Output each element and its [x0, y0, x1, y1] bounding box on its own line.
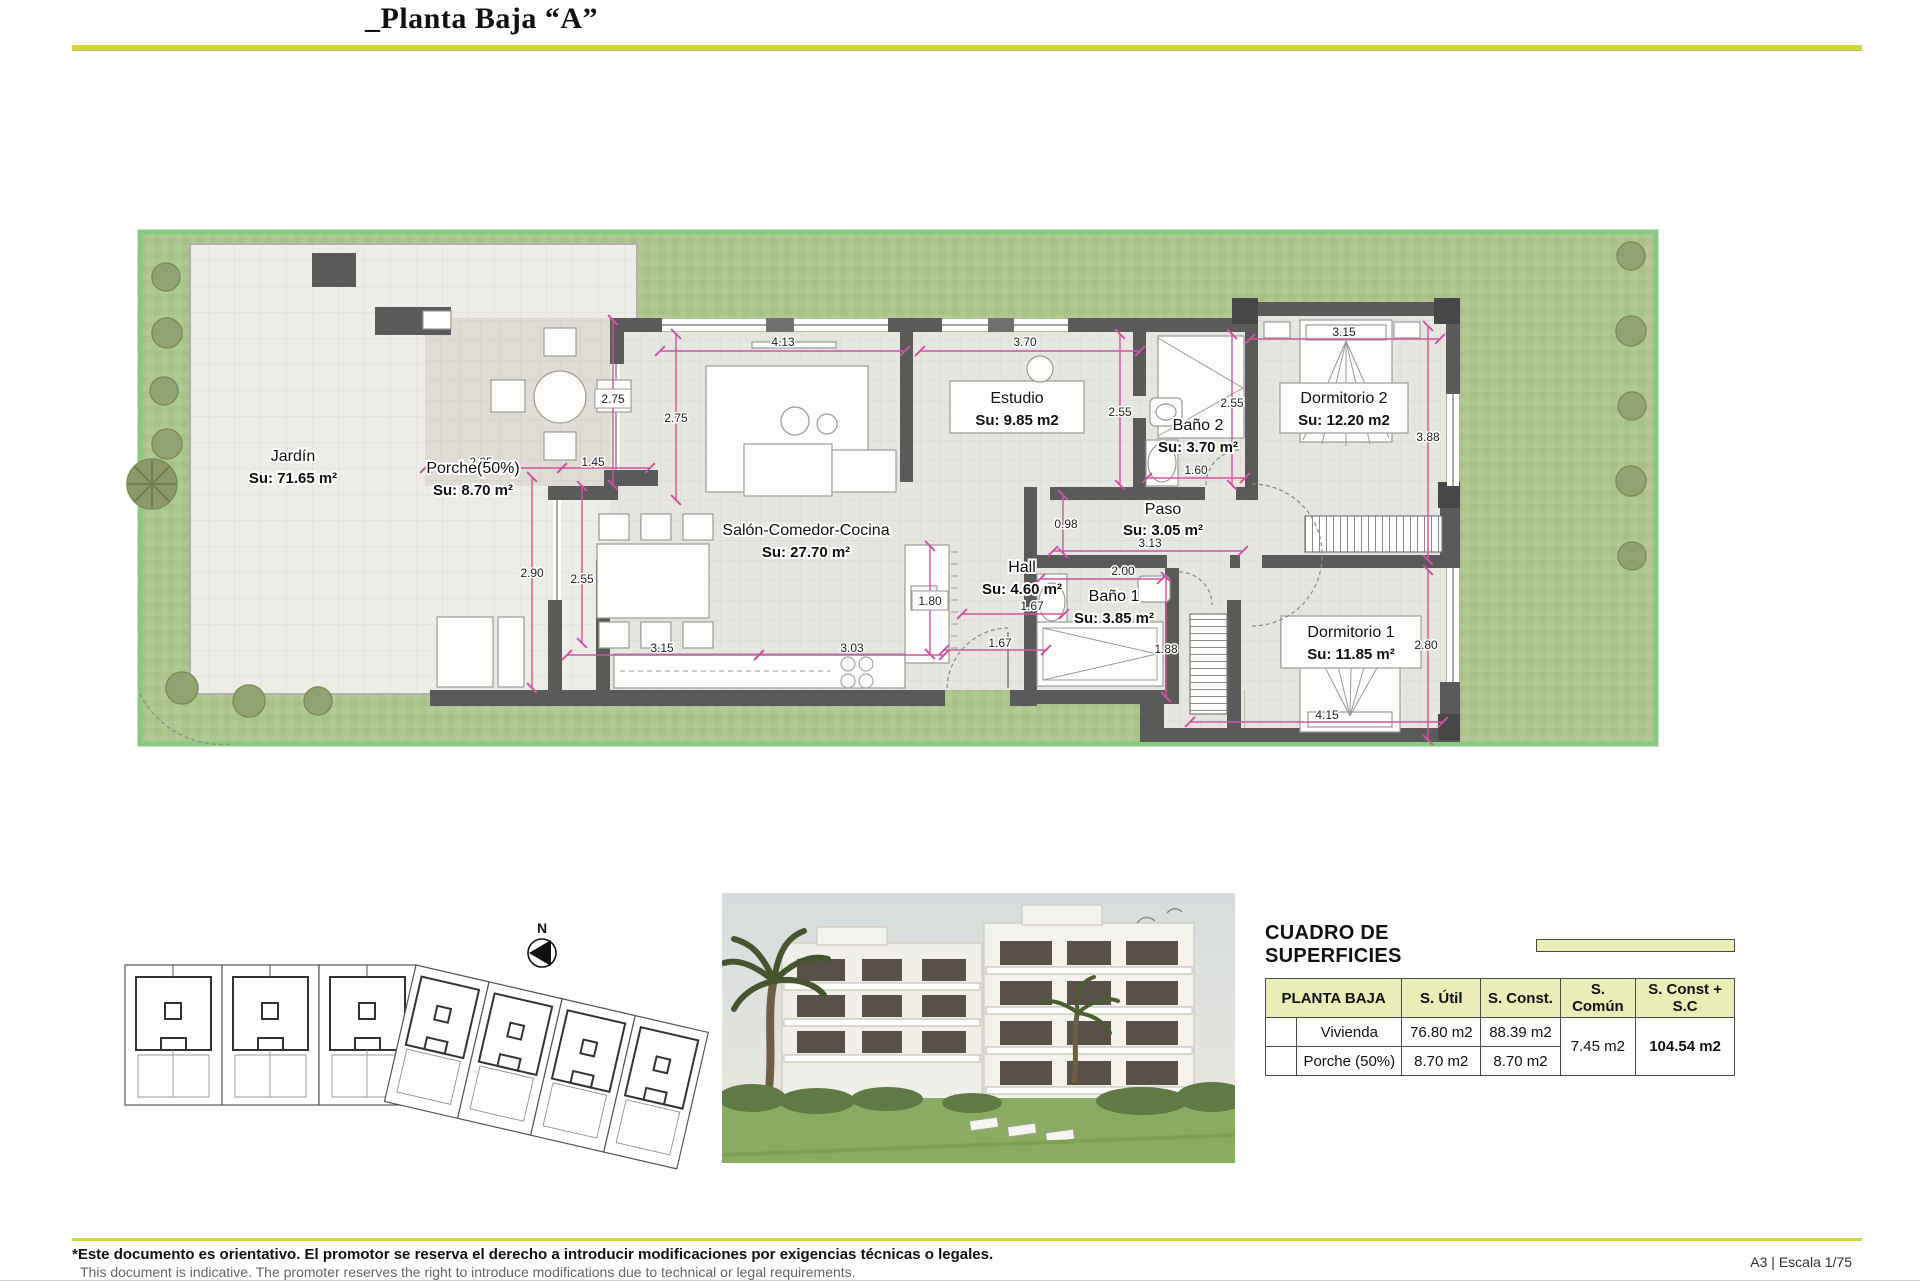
render-garden: [722, 1082, 1235, 1163]
col-floor: PLANTA BAJA: [1266, 979, 1402, 1018]
col-comun: S. Común: [1560, 979, 1636, 1018]
surfaces-title: CUADRO DE SUPERFICIES: [1265, 922, 1522, 968]
surfaces-title-bar: [1536, 939, 1735, 952]
row-name: Vivienda: [1297, 1018, 1402, 1047]
room-area-salon: Su: 27.70 m²: [762, 544, 850, 561]
col-util: S. Útil: [1402, 979, 1481, 1018]
dim-label: 2.55: [1220, 396, 1244, 410]
value-comun: 7.45 m2: [1560, 1018, 1636, 1076]
document-page: _Planta Baja “A”: [0, 0, 1920, 1281]
dim-label: 3.70: [1013, 335, 1037, 349]
dim-label: 2.55: [1108, 405, 1132, 419]
site-lots: [125, 965, 708, 1169]
sheet-scale-label: A3 | Escala 1/75: [1750, 1254, 1852, 1270]
room-area-porche: Su: 8.70 m²: [433, 482, 513, 499]
surfaces-panel: CUADRO DE SUPERFICIES PLANTA BAJA S. Úti…: [1265, 922, 1735, 1076]
room-label-bano1: Baño 1: [1089, 588, 1140, 605]
dim-label: 1.67: [988, 636, 1012, 650]
room-label-bano2: Baño 2: [1173, 417, 1224, 434]
room-area-estudio: Su: 9.85 m2: [975, 412, 1058, 429]
disclaimer-es: *Este documento es orientativo. El promo…: [72, 1246, 993, 1263]
north-arrow: N: [528, 920, 556, 967]
room-area-hall: Su: 4.60 m²: [982, 581, 1062, 598]
room-area-dormitorio1: Su: 11.85 m²: [1307, 646, 1395, 663]
room-area-paso: Su: 3.05 m²: [1123, 522, 1203, 539]
dim-label: 1.45: [581, 455, 605, 469]
table-row: Vivienda 76.80 m2 88.39 m2 7.45 m2 104.5…: [1266, 1018, 1735, 1047]
row-const: 8.70 m2: [1481, 1047, 1560, 1076]
building-render-photo: [722, 893, 1235, 1163]
dim-label: 4.13: [771, 335, 795, 349]
title-rule: [72, 45, 1862, 51]
dim-label: 2.00: [1111, 564, 1135, 578]
row-util: 8.70 m2: [1402, 1047, 1481, 1076]
render-buildings: [782, 905, 1194, 1103]
col-const: S. Const.: [1481, 979, 1560, 1018]
closet-hatch: [1190, 614, 1227, 714]
footer-rule: [72, 1238, 1862, 1241]
wardrobe-hatch: [1305, 516, 1442, 552]
room-label-estudio: Estudio: [990, 390, 1043, 407]
dim-label: 3.15: [1332, 325, 1356, 339]
row-spacer: [1266, 1047, 1297, 1076]
site-plan: N: [90, 915, 740, 1180]
room-label-dormitorio1: Dormitorio 1: [1307, 624, 1394, 641]
room-label-salon: Salón-Comedor-Cocina: [722, 522, 889, 539]
row-spacer: [1266, 1018, 1297, 1047]
dim-label: 1.80: [918, 594, 942, 608]
dim-label: 2.75: [601, 392, 625, 406]
dim-label: 2.55: [570, 572, 594, 586]
row-const: 88.39 m2: [1481, 1018, 1560, 1047]
room-label-paso: Paso: [1145, 501, 1182, 518]
dim-label: 3.03: [840, 641, 864, 655]
room-label-jardin: Jardín: [271, 448, 315, 465]
dim-label: 1.67: [1020, 599, 1044, 613]
dim-label: 3.88: [1416, 430, 1440, 444]
room-area-jardin: Su: 71.65 m²: [249, 470, 337, 487]
col-total: S. Const + S.C: [1636, 979, 1735, 1018]
dim-label: 2.75: [664, 411, 688, 425]
room-label-dormitorio2: Dormitorio 2: [1300, 390, 1387, 407]
floor-plan: 4.13 3.70 2.75 2.75 2.55 2.55 3.15 3.88 …: [100, 190, 1660, 760]
room-label-porche: Porche(50%): [426, 460, 519, 477]
dim-label: 1.60: [1184, 463, 1208, 477]
room-area-bano2: Su: 3.70 m²: [1158, 439, 1238, 456]
dim-label: 3.15: [650, 641, 674, 655]
dim-label: 2.80: [1414, 638, 1438, 652]
dim-label: 0.98: [1054, 517, 1078, 531]
room-label-hall: Hall: [1008, 559, 1036, 576]
value-total: 104.54 m2: [1636, 1018, 1735, 1076]
surfaces-table: PLANTA BAJA S. Útil S. Const. S. Común S…: [1265, 978, 1735, 1076]
dim-label: 1.88: [1154, 642, 1178, 656]
room-area-dormitorio2: Su: 12.20 m2: [1298, 412, 1390, 429]
row-name: Porche (50%): [1297, 1047, 1402, 1076]
room-area-bano1: Su: 3.85 m²: [1074, 610, 1154, 627]
row-util: 76.80 m2: [1402, 1018, 1481, 1047]
north-label: N: [537, 920, 547, 936]
dim-label: 4.15: [1315, 708, 1339, 722]
page-title: _Planta Baja “A”: [365, 2, 598, 36]
dim-label: 2.90: [520, 566, 544, 580]
disclaimer-en: This document is indicative. The promote…: [80, 1264, 856, 1280]
